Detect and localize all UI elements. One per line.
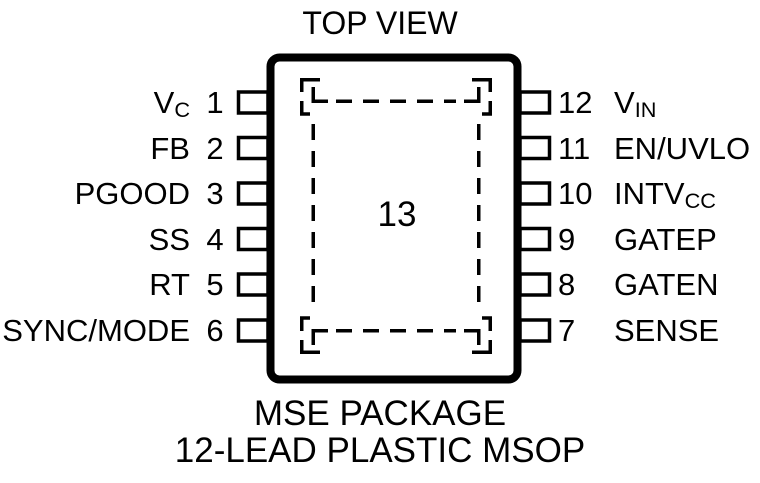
pin-label-8: GATEN [614, 267, 719, 302]
pin-number-1: 1 [202, 84, 228, 121]
pin-lead-11 [520, 138, 550, 159]
pin-row-left-5: RT5 [0, 266, 228, 303]
pin-label-10: INTVCC [614, 176, 716, 211]
pin-lead-1 [239, 92, 269, 113]
pin-lead-3 [239, 183, 269, 204]
pin-row-right-11: 11EN/UVLO [558, 130, 758, 167]
pin-label-5: RT [149, 267, 190, 302]
pin-number-6: 6 [202, 312, 228, 349]
pin-lead-12 [520, 92, 550, 113]
pinout-diagram: TOP VIEW [0, 0, 760, 483]
pin-label-12: VIN [614, 85, 656, 120]
pin-lead-4 [239, 229, 269, 250]
pin-number-2: 2 [202, 130, 228, 167]
pin-number-10: 10 [558, 175, 608, 212]
pin-lead-7 [520, 320, 550, 341]
pin-number-5: 5 [202, 266, 228, 303]
pin-label-3: PGOOD [75, 176, 190, 211]
pin-row-right-10: 10INTVCC [558, 175, 758, 212]
pin-label-2: FB [150, 131, 190, 166]
pin-row-right-9: 9GATEP [558, 221, 758, 258]
pin-lead-8 [520, 274, 550, 295]
pin-number-7: 7 [558, 312, 608, 349]
pin-label-11: EN/UVLO [614, 131, 750, 166]
pin-lead-10 [520, 183, 550, 204]
pin-number-4: 4 [202, 221, 228, 258]
pin-number-8: 8 [558, 266, 608, 303]
pin-row-left-3: PGOOD3 [0, 175, 228, 212]
pin-label-4: SS [149, 222, 190, 257]
pin-row-right-12: 12VIN [558, 84, 758, 121]
package-type-caption: 12-LEAD PLASTIC MSOP [0, 432, 760, 470]
pad-number: 13 [347, 195, 447, 235]
pin-lead-5 [239, 274, 269, 295]
pin-lead-2 [239, 138, 269, 159]
pin-label-7: SENSE [614, 313, 719, 348]
pin-lead-9 [520, 229, 550, 250]
pin-label-1: VC [154, 85, 190, 120]
pin-number-11: 11 [558, 130, 608, 167]
pin-row-right-8: 8GATEN [558, 266, 758, 303]
pin-label-6: SYNC/MODE [2, 313, 190, 348]
pin-number-3: 3 [202, 175, 228, 212]
pin-row-left-2: FB2 [0, 130, 228, 167]
pin-row-left-4: SS4 [0, 221, 228, 258]
pin-number-9: 9 [558, 221, 608, 258]
pin-lead-6 [239, 320, 269, 341]
pin-label-9: GATEP [614, 222, 717, 257]
pin-row-left-1: VC1 [0, 84, 228, 121]
pin-number-12: 12 [558, 84, 608, 121]
pin-row-right-7: 7SENSE [558, 312, 758, 349]
pin-row-left-6: SYNC/MODE6 [0, 312, 228, 349]
package-name-caption: MSE PACKAGE [0, 395, 760, 433]
